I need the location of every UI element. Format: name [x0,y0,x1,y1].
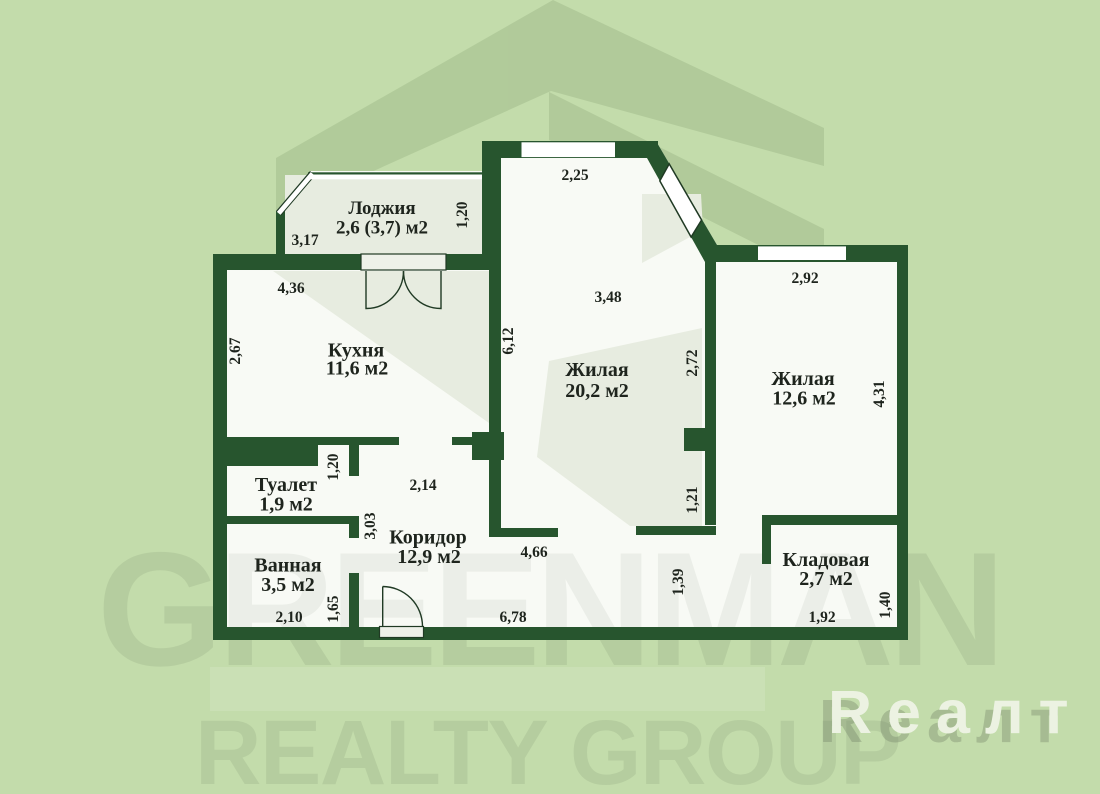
svg-text:REALTY GROUP: REALTY GROUP [195,702,900,794]
svg-text:3,03: 3,03 [362,512,379,539]
svg-text:2,6 (3,7) м2: 2,6 (3,7) м2 [336,218,428,239]
svg-text:2,72: 2,72 [684,349,701,376]
svg-text:Жилая: Жилая [565,359,629,381]
svg-text:6,78: 6,78 [499,609,526,626]
svg-text:1,20: 1,20 [325,453,342,480]
svg-text:12,9 м2: 12,9 м2 [397,546,461,568]
svg-text:2,25: 2,25 [561,167,588,184]
svg-text:4,31: 4,31 [871,380,888,407]
svg-text:1,20: 1,20 [454,201,471,228]
svg-text:1,9 м2: 1,9 м2 [259,494,313,516]
svg-text:2,10: 2,10 [275,609,302,626]
svg-text:2,7 м2: 2,7 м2 [799,568,853,590]
svg-text:3,17: 3,17 [291,232,318,249]
svg-text:11,6 м2: 11,6 м2 [326,358,389,380]
svg-text:3,5 м2: 3,5 м2 [261,574,315,596]
svg-text:6,12: 6,12 [500,327,517,354]
svg-text:1,92: 1,92 [808,609,835,626]
svg-text:1,40: 1,40 [877,591,894,618]
svg-text:1,39: 1,39 [670,568,687,595]
svg-text:3,48: 3,48 [594,289,621,306]
svg-text:Reaлт: Reaлт [828,678,1084,746]
svg-text:4,36: 4,36 [277,280,304,297]
svg-text:2,14: 2,14 [409,477,436,494]
svg-text:4,66: 4,66 [520,544,547,561]
svg-text:2,92: 2,92 [791,270,818,287]
svg-text:2,67: 2,67 [227,337,244,364]
svg-text:12,6 м2: 12,6 м2 [772,388,836,410]
svg-text:1,65: 1,65 [325,595,342,622]
svg-text:20,2 м2: 20,2 м2 [565,380,629,402]
svg-text:Лоджия: Лоджия [348,198,415,219]
svg-text:1,21: 1,21 [684,486,701,513]
